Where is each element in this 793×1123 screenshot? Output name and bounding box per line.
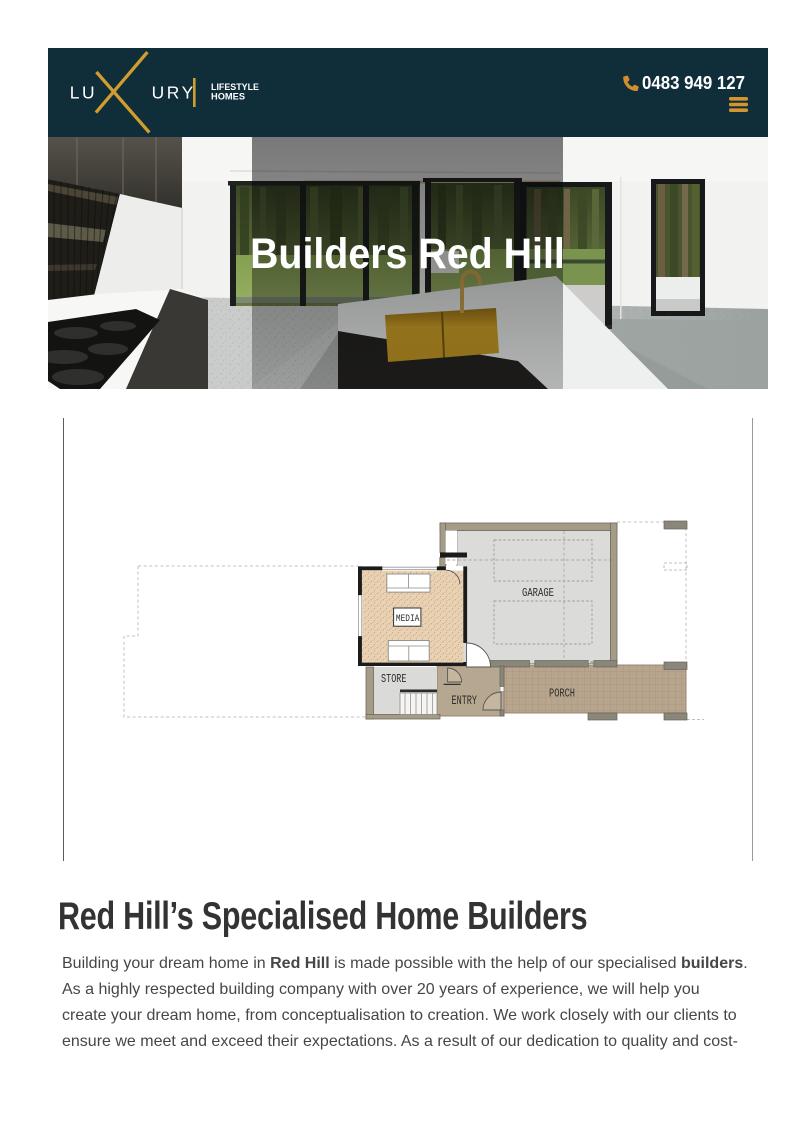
- svg-text:0483 949 127: 0483 949 127: [642, 72, 745, 93]
- svg-text:PORCH: PORCH: [549, 688, 575, 701]
- svg-text:GARAGE: GARAGE: [522, 586, 554, 600]
- svg-text:LU: LU: [70, 82, 97, 102]
- svg-text:HOMES: HOMES: [211, 91, 245, 101]
- svg-text:MEDIA: MEDIA: [396, 613, 420, 625]
- svg-text:ENTRY: ENTRY: [452, 694, 478, 708]
- svg-text:URY: URY: [152, 82, 196, 102]
- svg-text:STORE: STORE: [381, 672, 407, 686]
